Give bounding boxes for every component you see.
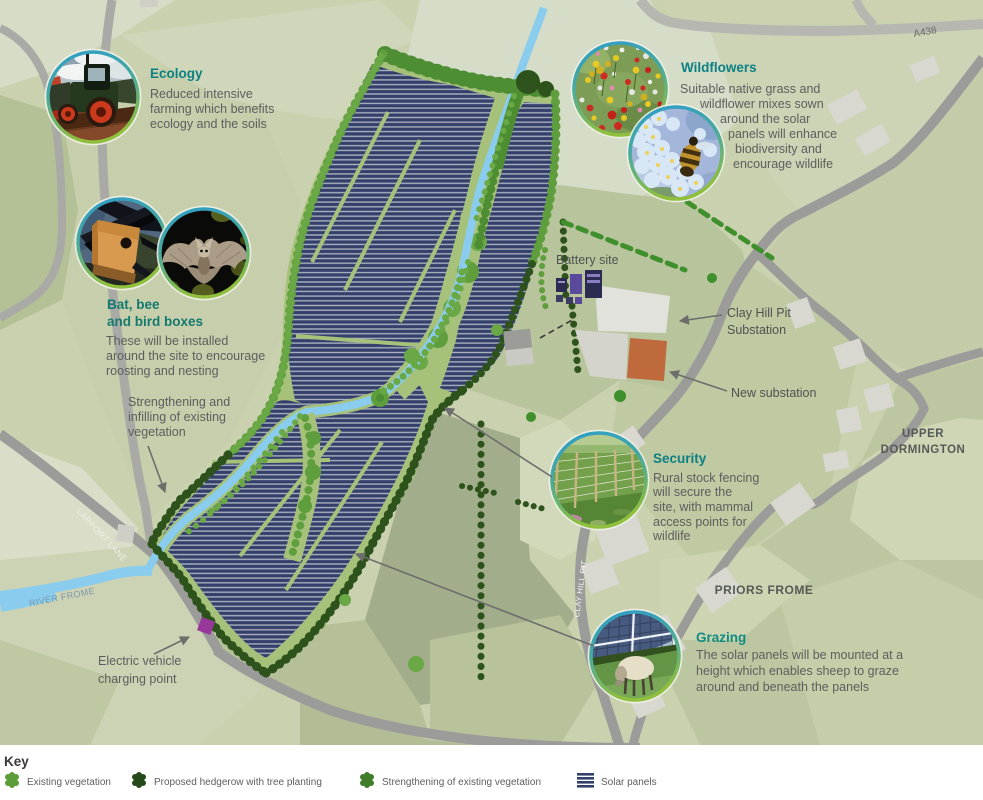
svg-text:access points for: access points for [653, 515, 747, 529]
svg-text:height which enables sheep to: height which enables sheep to graze [696, 664, 899, 678]
svg-text:Reduced intensive: Reduced intensive [150, 87, 253, 101]
svg-text:Electric vehicle: Electric vehicle [98, 654, 181, 668]
svg-text:The solar panels will be mount: The solar panels will be mounted at a [696, 648, 903, 662]
svg-text:Security: Security [653, 451, 707, 466]
svg-text:PRIORS FROME: PRIORS FROME [715, 583, 814, 597]
svg-text:Strengthening and: Strengthening and [128, 395, 230, 409]
svg-text:vegetation: vegetation [128, 425, 186, 439]
svg-text:farming which benefits: farming which benefits [150, 102, 274, 116]
svg-text:Rural stock fencing: Rural stock fencing [653, 471, 759, 485]
svg-text:Existing vegetation: Existing vegetation [27, 777, 111, 788]
svg-text:site, with mammal: site, with mammal [653, 500, 753, 514]
svg-text:Clay Hill Pit: Clay Hill Pit [727, 306, 791, 320]
svg-text:infilling of existing: infilling of existing [128, 410, 226, 424]
svg-text:panels will enhance: panels will enhance [728, 127, 837, 141]
svg-text:Key: Key [4, 754, 29, 769]
svg-text:Battery site: Battery site [556, 253, 619, 267]
svg-text:around and beneath the panels: around and beneath the panels [696, 680, 869, 694]
svg-text:charging point: charging point [98, 672, 177, 686]
svg-text:UPPER: UPPER [902, 428, 944, 440]
svg-text:DORMINGTON: DORMINGTON [881, 444, 966, 456]
svg-text:ecology and the soils: ecology and the soils [150, 117, 267, 131]
svg-text:Strengthening of existing vege: Strengthening of existing vegetation [382, 777, 541, 788]
svg-text:and bird boxes: and bird boxes [107, 314, 203, 329]
svg-text:biodiversity and: biodiversity and [735, 142, 822, 156]
svg-text:around the solar: around the solar [720, 112, 810, 126]
svg-text:around the site to encourage: around the site to encourage [106, 349, 265, 363]
svg-text:Solar panels: Solar panels [601, 777, 657, 788]
svg-text:Wildflowers: Wildflowers [681, 60, 757, 75]
svg-text:encourage wildlife: encourage wildlife [733, 157, 833, 171]
svg-text:wildlife: wildlife [652, 529, 691, 543]
svg-text:These will be installed: These will be installed [106, 334, 228, 348]
svg-text:roosting and nesting: roosting and nesting [106, 364, 219, 378]
svg-text:Grazing: Grazing [696, 630, 746, 645]
svg-text:wildflower mixes sown: wildflower mixes sown [699, 97, 824, 111]
svg-text:Proposed hedgerow with tree pl: Proposed hedgerow with tree planting [154, 777, 322, 788]
svg-text:Substation: Substation [727, 323, 786, 337]
svg-text:will secure the: will secure the [652, 485, 732, 499]
svg-text:New substation: New substation [731, 386, 817, 400]
svg-text:Ecology: Ecology [150, 66, 203, 81]
svg-text:Suitable native grass and: Suitable native grass and [680, 82, 820, 96]
svg-text:Bat, bee: Bat, bee [107, 297, 160, 312]
